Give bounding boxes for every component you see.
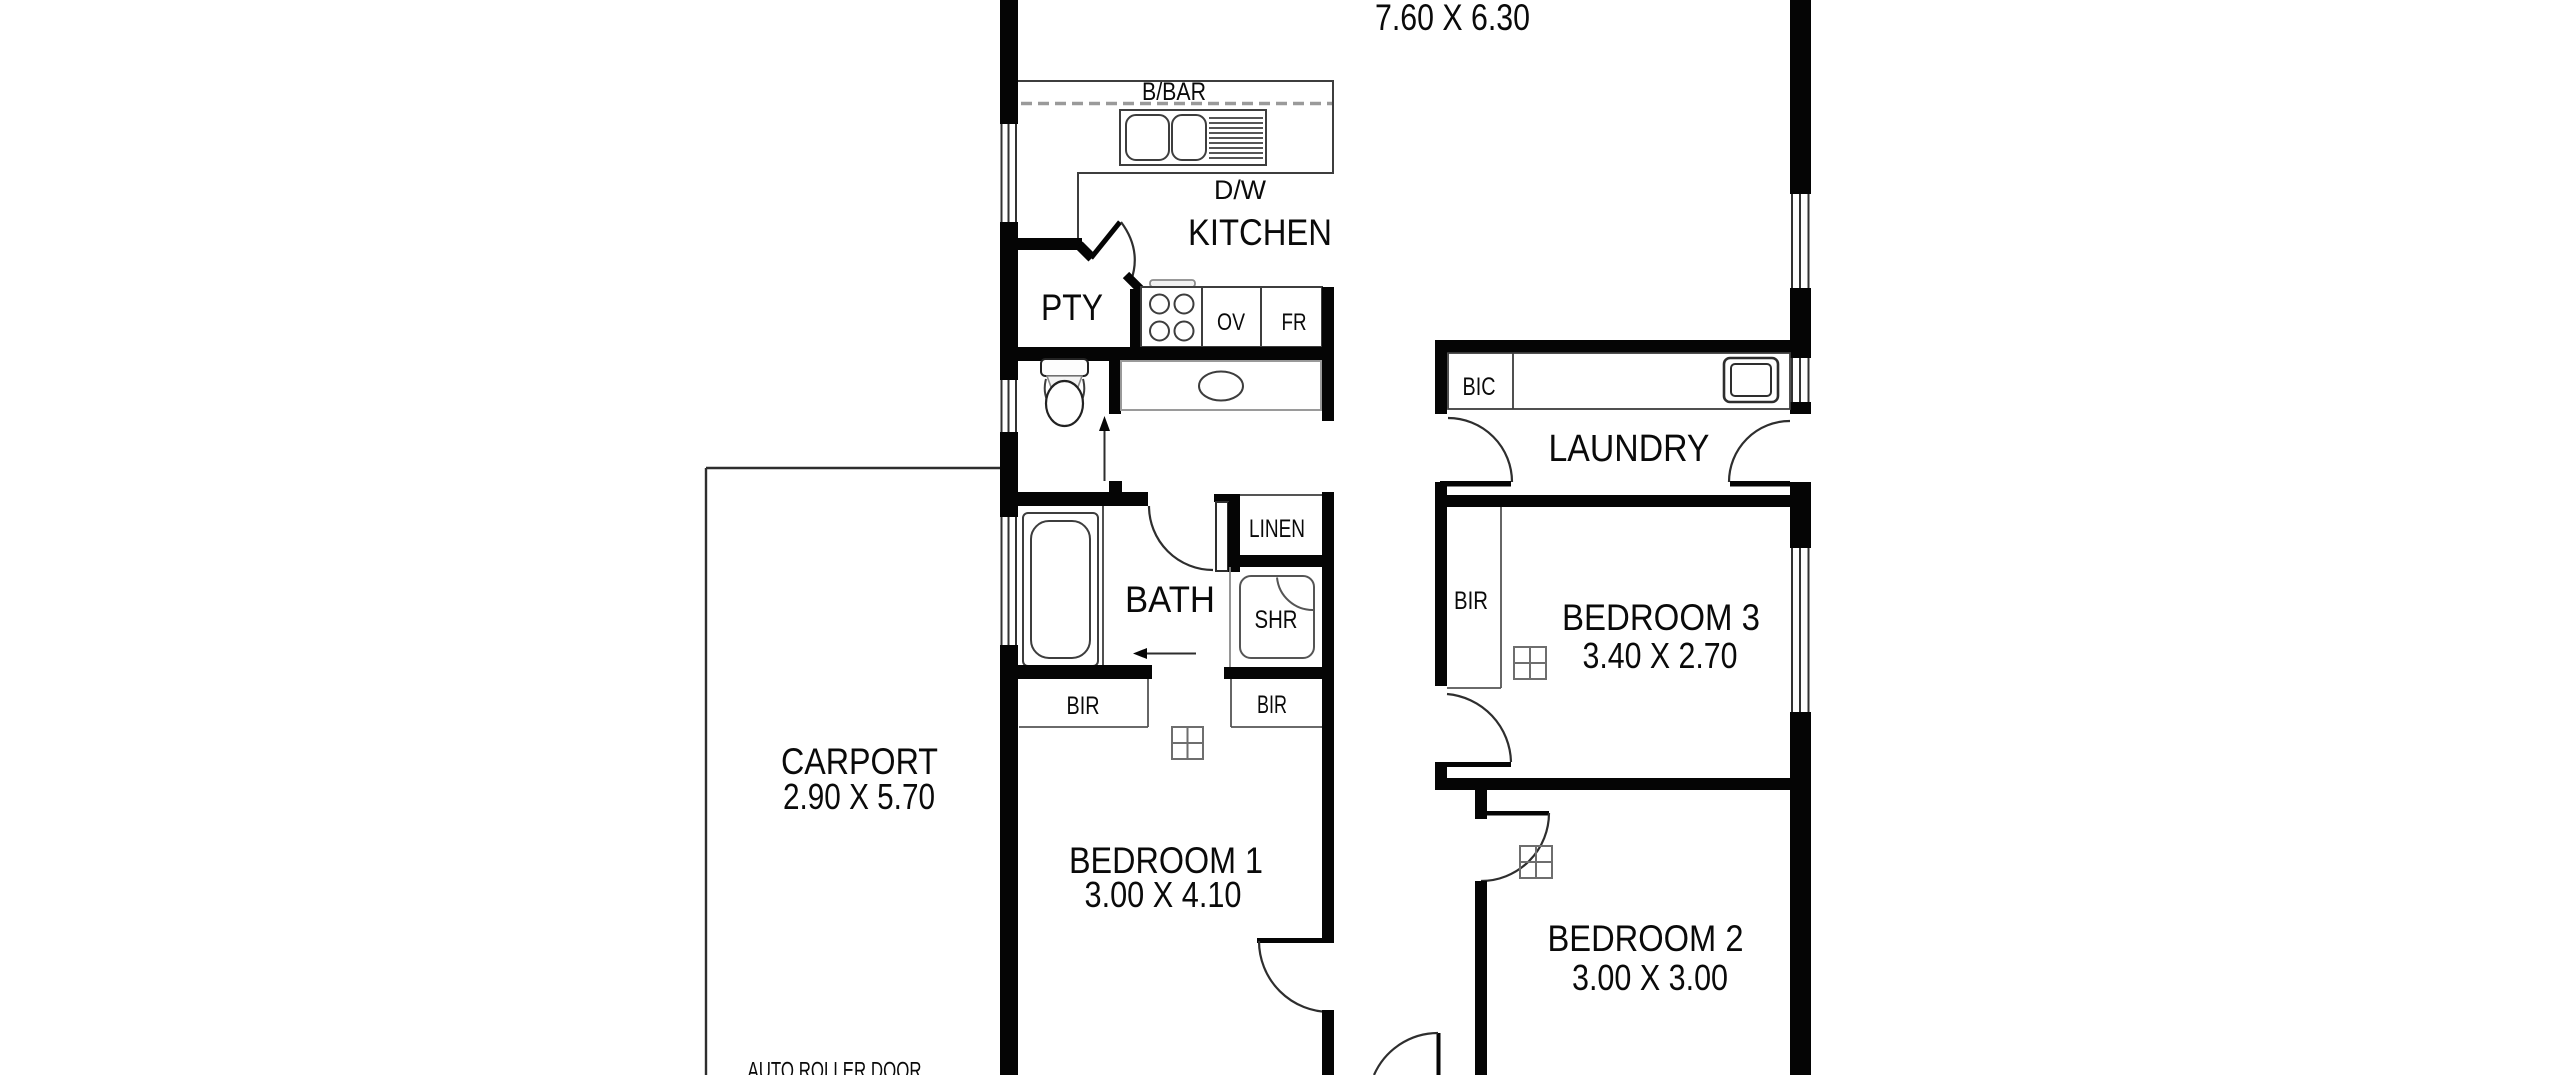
svg-text:BIC: BIC [1463, 373, 1496, 401]
svg-text:3.40 X 2.70: 3.40 X 2.70 [1583, 635, 1738, 676]
svg-text:D/W: D/W [1214, 175, 1267, 205]
svg-text:B/BAR: B/BAR [1142, 78, 1206, 106]
svg-text:KITCHEN: KITCHEN [1188, 212, 1332, 253]
svg-text:7.60 X 6.30: 7.60 X 6.30 [1375, 0, 1530, 38]
svg-text:LINEN: LINEN [1249, 515, 1305, 543]
svg-text:FR: FR [1282, 309, 1307, 336]
svg-text:3.00 X 4.10: 3.00 X 4.10 [1085, 874, 1242, 915]
svg-text:LAUNDRY: LAUNDRY [1549, 428, 1710, 470]
svg-text:BATH: BATH [1125, 579, 1215, 620]
svg-text:3.00 X 3.00: 3.00 X 3.00 [1572, 957, 1728, 998]
svg-text:AUTO ROLLER DOOR: AUTO ROLLER DOOR [748, 1058, 922, 1075]
svg-text:2.90 X 5.70: 2.90 X 5.70 [783, 776, 935, 817]
svg-text:BIR: BIR [1454, 587, 1488, 615]
svg-text:BIR: BIR [1067, 692, 1100, 720]
svg-text:BEDROOM 2: BEDROOM 2 [1548, 918, 1744, 959]
svg-text:PTY: PTY [1041, 287, 1103, 328]
svg-text:OV: OV [1217, 309, 1245, 336]
svg-text:SHR: SHR [1255, 606, 1298, 634]
svg-text:BIR: BIR [1257, 691, 1287, 719]
svg-text:BEDROOM 3: BEDROOM 3 [1562, 597, 1760, 638]
